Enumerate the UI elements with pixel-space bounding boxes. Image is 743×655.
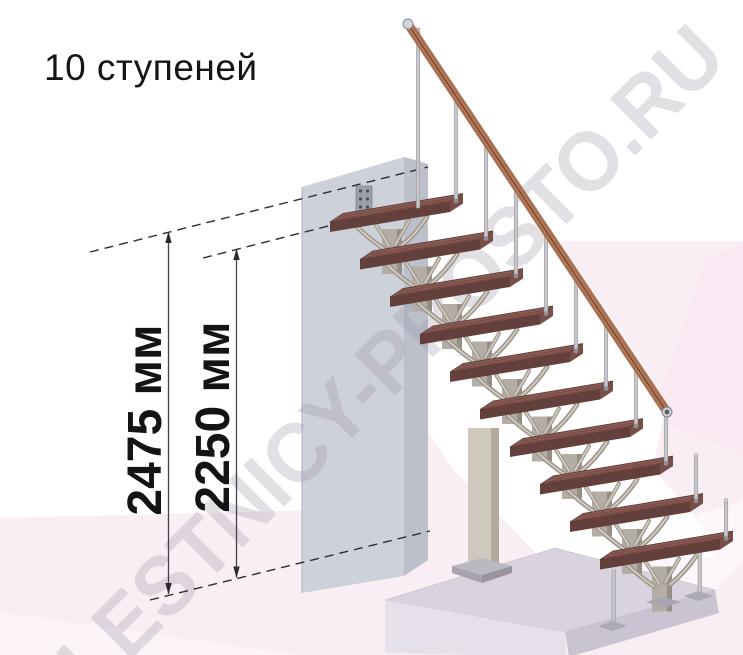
baluster xyxy=(604,321,608,389)
baluster-cap xyxy=(724,498,728,502)
handrail-end-cap-core xyxy=(665,410,670,415)
page-title: 10 ступеней xyxy=(44,47,258,88)
baluster-foot xyxy=(484,236,489,241)
baluster-foot xyxy=(634,424,639,429)
staircase-diagram-canvas: LESTNICY-PROSTO.RU 2475 мм 2250 мм 1 xyxy=(0,0,743,655)
baluster xyxy=(454,96,458,201)
baluster xyxy=(574,276,578,351)
baluster-foot xyxy=(544,311,549,316)
baluster-foot xyxy=(664,461,669,466)
diagram-page: LESTNICY-PROSTO.RU 2475 мм 2250 мм 1 xyxy=(0,0,743,655)
baluster xyxy=(484,141,488,239)
baluster-foot xyxy=(574,349,579,354)
bottom-step-front-leg xyxy=(612,570,616,627)
baluster xyxy=(664,411,668,464)
dimension-label-2250: 2250 мм xyxy=(187,321,240,512)
baluster-cap xyxy=(694,453,698,457)
baluster xyxy=(544,231,548,314)
rail-start-post xyxy=(416,28,419,208)
dimension-label-2475: 2475 мм xyxy=(119,324,172,515)
baluster-foot xyxy=(454,199,459,204)
post-shadow xyxy=(491,428,499,568)
baluster-foot xyxy=(724,536,729,541)
baluster xyxy=(724,500,728,538)
baluster xyxy=(694,455,698,501)
baluster-foot xyxy=(694,499,699,504)
bottom-step-right-leg xyxy=(698,552,702,598)
baluster xyxy=(514,186,518,276)
baluster-foot xyxy=(604,386,609,391)
baluster-foot xyxy=(514,274,519,279)
handrail-start-cap xyxy=(403,19,413,29)
